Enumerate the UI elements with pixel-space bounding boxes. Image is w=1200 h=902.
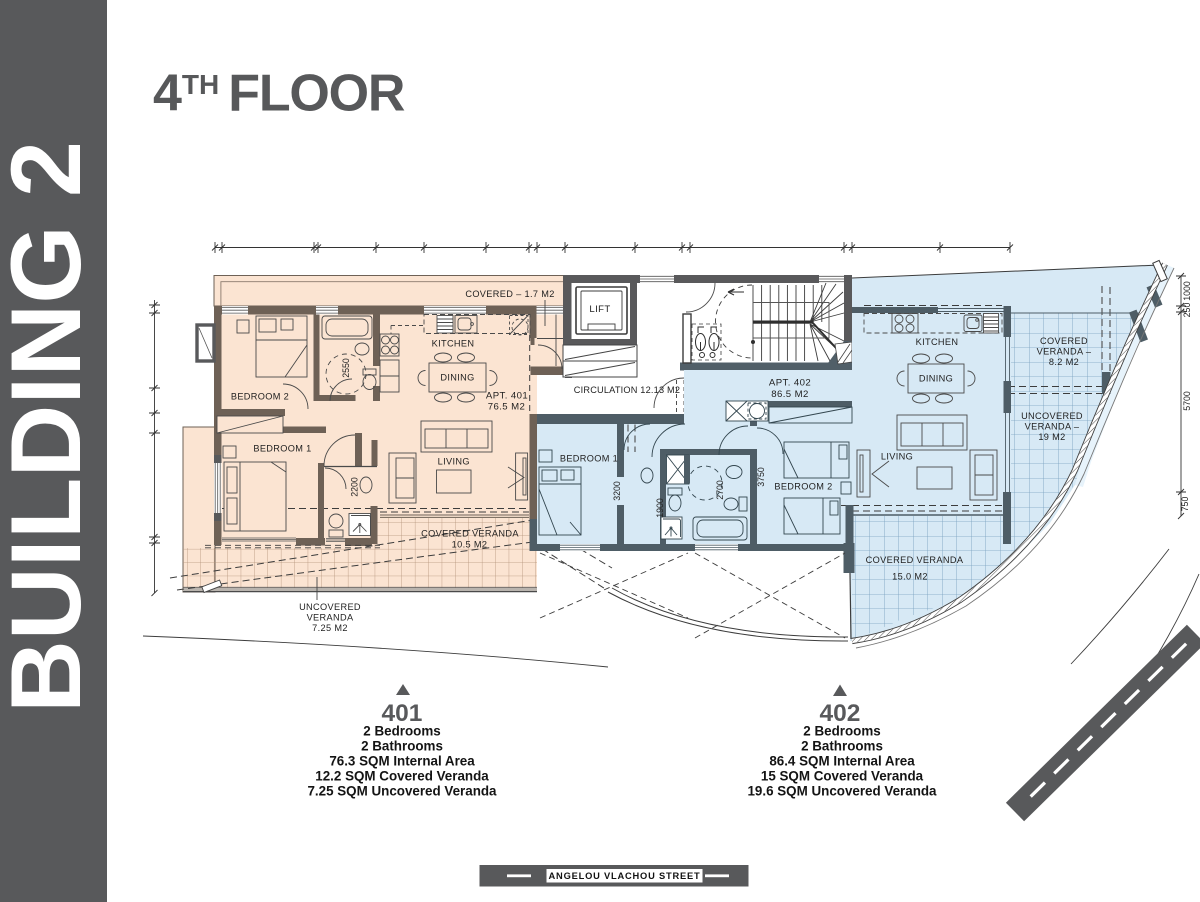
svg-text:BUILDING 2: BUILDING 2 xyxy=(0,141,101,713)
svg-text:12.2 SQM Covered Veranda: 12.2 SQM Covered Veranda xyxy=(315,769,489,784)
svg-text:86.5 M2: 86.5 M2 xyxy=(771,389,808,400)
svg-text:DINING: DINING xyxy=(440,373,474,383)
svg-text:10.5 M2: 10.5 M2 xyxy=(452,540,488,550)
svg-text:2700: 2700 xyxy=(715,480,725,500)
svg-text:CIRCULATION 12.13 M2: CIRCULATION 12.13 M2 xyxy=(574,385,680,395)
svg-text:76.5 M2: 76.5 M2 xyxy=(488,402,525,413)
svg-text:250: 250 xyxy=(1182,303,1192,318)
svg-text:5700: 5700 xyxy=(1182,391,1192,411)
svg-text:2550: 2550 xyxy=(341,358,351,378)
svg-text:UNCOVERED: UNCOVERED xyxy=(299,602,361,612)
svg-text:VERANDA –: VERANDA – xyxy=(1037,347,1092,357)
svg-text:2200: 2200 xyxy=(350,477,360,497)
svg-text:76.3 SQM Internal Area: 76.3 SQM Internal Area xyxy=(329,754,475,769)
svg-text:LIVING: LIVING xyxy=(881,452,913,462)
svg-text:15.0 M2: 15.0 M2 xyxy=(892,572,928,582)
svg-text:VERANDA: VERANDA xyxy=(307,613,354,623)
svg-text:LIVING: LIVING xyxy=(438,457,470,467)
svg-text:19.6 SQM Uncovered Veranda: 19.6 SQM Uncovered Veranda xyxy=(747,784,937,799)
svg-text:KITCHEN: KITCHEN xyxy=(916,337,959,347)
svg-text:7.25 M2: 7.25 M2 xyxy=(312,623,348,633)
svg-text:COVERED – 1.7 M2: COVERED – 1.7 M2 xyxy=(465,289,554,299)
svg-text:BEDROOM 2: BEDROOM 2 xyxy=(231,392,289,402)
svg-text:2 Bedrooms: 2 Bedrooms xyxy=(803,724,880,739)
svg-text:8.2 M2: 8.2 M2 xyxy=(1049,357,1079,367)
svg-text:86.4 SQM Internal Area: 86.4 SQM Internal Area xyxy=(769,754,915,769)
svg-text:7.25 SQM Uncovered Veranda: 7.25 SQM Uncovered Veranda xyxy=(307,784,497,799)
svg-text:2 Bathrooms: 2 Bathrooms xyxy=(361,739,443,754)
svg-text:LIFT: LIFT xyxy=(589,304,610,315)
svg-text:15 SQM Covered Veranda: 15 SQM Covered Veranda xyxy=(761,769,924,784)
svg-text:BEDROOM 2: BEDROOM 2 xyxy=(774,482,832,492)
svg-text:19 M2: 19 M2 xyxy=(1038,432,1065,442)
svg-text:KITCHEN: KITCHEN xyxy=(432,339,475,349)
svg-text:750: 750 xyxy=(1180,497,1190,512)
svg-text:ANGELOU VLACHOU STREET: ANGELOU VLACHOU STREET xyxy=(549,871,701,881)
svg-text:APT. 401: APT. 401 xyxy=(486,391,528,402)
svg-text:BEDROOM 1: BEDROOM 1 xyxy=(560,454,618,464)
svg-text:DINING: DINING xyxy=(919,374,953,384)
svg-text:COVERED VERANDA: COVERED VERANDA xyxy=(421,529,519,539)
svg-text:1900: 1900 xyxy=(655,498,665,518)
svg-text:2 Bedrooms: 2 Bedrooms xyxy=(363,724,440,739)
svg-text:1000: 1000 xyxy=(1182,281,1192,301)
svg-text:VERANDA –: VERANDA – xyxy=(1025,422,1080,432)
svg-text:COVERED VERANDA: COVERED VERANDA xyxy=(866,555,964,565)
svg-text:COVERED: COVERED xyxy=(1040,336,1088,346)
svg-text:APT. 402: APT. 402 xyxy=(769,378,811,389)
svg-text:3200: 3200 xyxy=(612,481,622,501)
svg-text:UNCOVERED: UNCOVERED xyxy=(1021,411,1083,421)
svg-text:2 Bathrooms: 2 Bathrooms xyxy=(801,739,883,754)
svg-text:BEDROOM 1: BEDROOM 1 xyxy=(253,444,311,454)
svg-text:3750: 3750 xyxy=(756,467,766,487)
